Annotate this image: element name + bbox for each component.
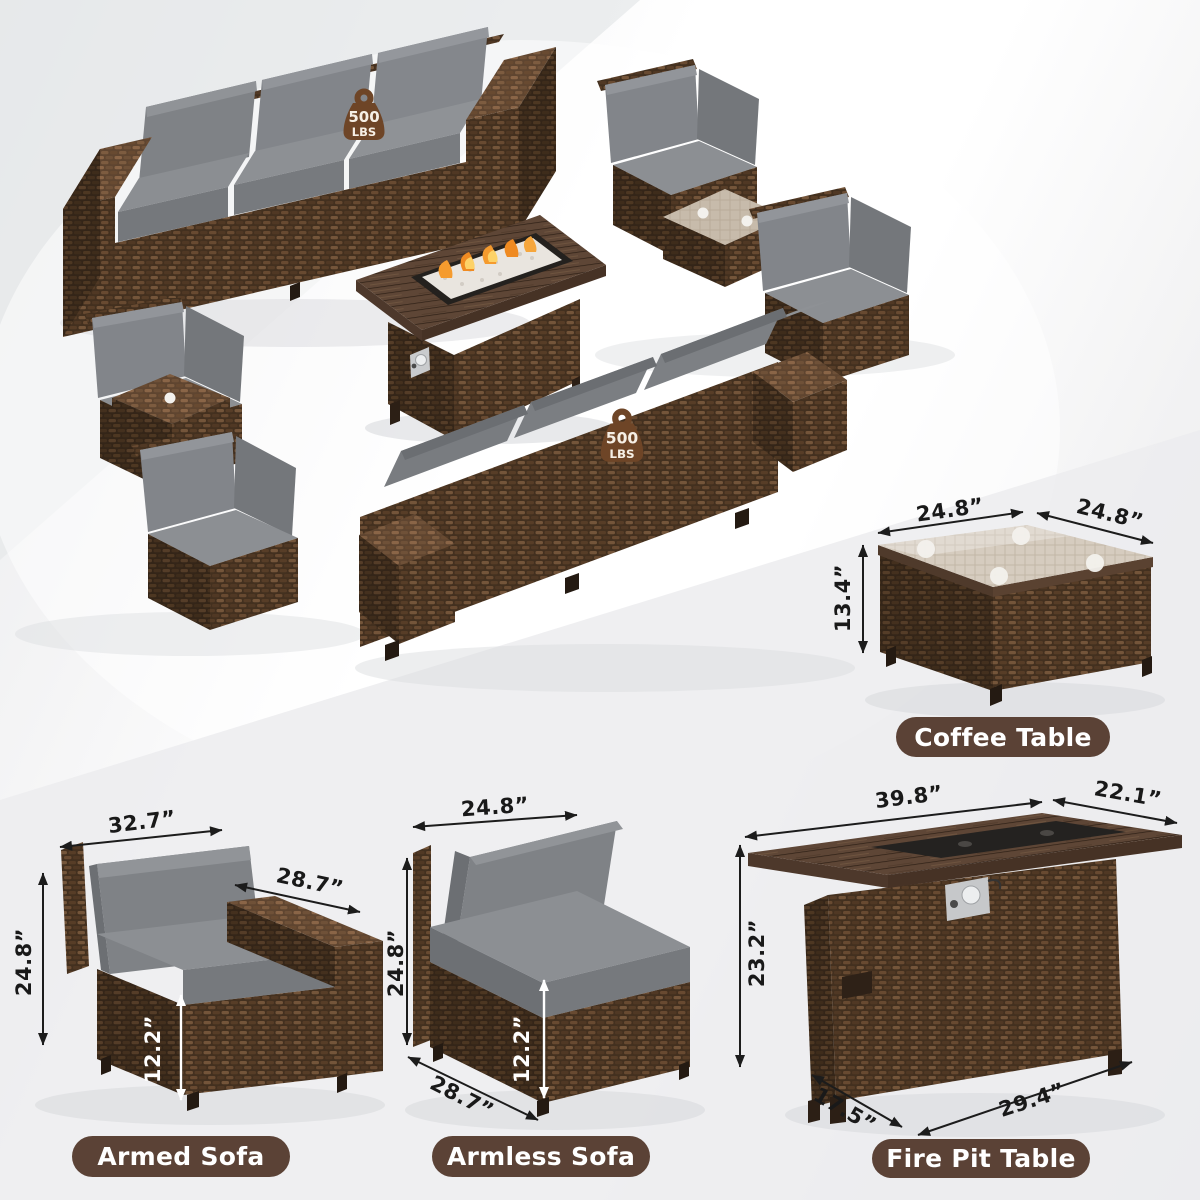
- kettlebell-handle-icon: [615, 412, 628, 425]
- coffee-table-label: Coffee Table: [896, 717, 1110, 757]
- weight-unit: LBS: [609, 447, 634, 461]
- back-panel: [61, 842, 89, 974]
- coffee-table-height-dimension: 13.4”: [831, 564, 855, 632]
- armed-sofa-illustration: [5, 800, 405, 1180]
- armless-sofa-seat-height-dimension: 12.2”: [510, 1015, 534, 1083]
- armed-sofa-height-dimension: 24.8”: [12, 928, 36, 996]
- weight-value: 500: [348, 108, 379, 126]
- weight-capacity-badge: 500 LBS: [598, 408, 646, 464]
- back-panel: [413, 845, 431, 1047]
- fire-pit-table-illustration: [730, 785, 1200, 1185]
- armed-sofa-label: Armed Sofa: [72, 1136, 290, 1177]
- armed-sofa-seat-height-dimension: 12.2”: [141, 1015, 165, 1083]
- weight-capacity-badge: 500 LBS: [341, 88, 387, 142]
- armless-sofa-illustration: [385, 795, 705, 1185]
- corner-chair-2: [132, 426, 298, 630]
- fire-pit-height-dimension: 23.2”: [745, 919, 769, 987]
- weight-unit: LBS: [352, 125, 376, 139]
- armless-sofa-height-dimension: 24.8”: [384, 929, 408, 997]
- kettlebell-handle-icon: [358, 92, 371, 105]
- weight-value: 500: [606, 429, 639, 447]
- fire-pit-table-label: Fire Pit Table: [872, 1139, 1090, 1178]
- base-left: [97, 969, 183, 1095]
- armless-sofa-label: Armless Sofa: [432, 1136, 650, 1177]
- armless-sofa-width-dimension: 24.8”: [460, 793, 530, 822]
- scene-corner-set-left: [0, 298, 360, 670]
- product-dimension-sheet: 500 LBS 500 LBS: [0, 0, 1200, 1200]
- base-front: [183, 987, 335, 1095]
